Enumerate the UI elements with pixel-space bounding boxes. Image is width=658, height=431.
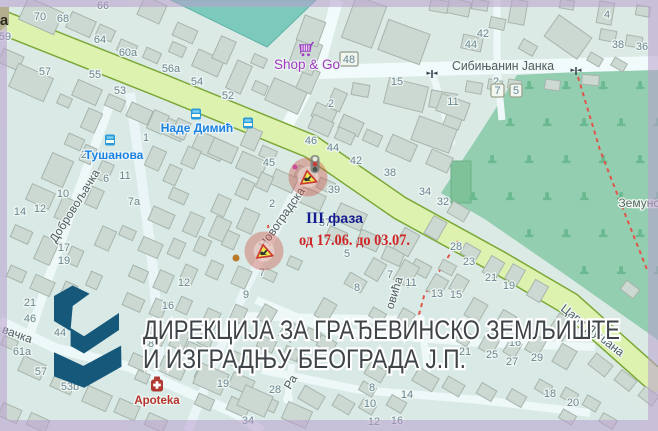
svg-text:55: 55 — [89, 69, 101, 81]
svg-text:Тушанова: Тушанова — [85, 148, 144, 162]
svg-text:14: 14 — [401, 389, 413, 401]
svg-text:38: 38 — [384, 167, 396, 179]
svg-text:5: 5 — [513, 85, 519, 97]
svg-text:Apoteka: Apoteka — [134, 395, 180, 407]
svg-text:10: 10 — [364, 398, 376, 410]
svg-text:19: 19 — [503, 280, 515, 292]
svg-text:53: 53 — [114, 85, 126, 97]
svg-text:14: 14 — [14, 206, 26, 218]
svg-text:11: 11 — [405, 277, 416, 289]
svg-text:68: 68 — [57, 13, 69, 25]
svg-text:12: 12 — [178, 277, 190, 289]
svg-text:19: 19 — [217, 378, 229, 390]
svg-text:64: 64 — [94, 34, 106, 46]
svg-text:ДИРЕКЦИЈА ЗА ГРАЂЕВИНСКО ЗЕМЉИ: ДИРЕКЦИЈА ЗА ГРАЂЕВИНСКО ЗЕМЉИШТЕ — [143, 315, 620, 345]
svg-text:9: 9 — [243, 289, 249, 301]
svg-text:46: 46 — [24, 313, 36, 325]
svg-text:15: 15 — [450, 289, 462, 301]
svg-text:IIIфаза: IIIфаза — [306, 210, 363, 227]
svg-text:56a: 56a — [162, 63, 181, 75]
svg-text:7а: 7а — [128, 196, 141, 208]
svg-text:11: 11 — [447, 96, 458, 108]
svg-text:21: 21 — [485, 272, 497, 284]
svg-text:11: 11 — [119, 170, 130, 182]
svg-text:42: 42 — [350, 155, 362, 167]
svg-text:25: 25 — [486, 349, 498, 361]
svg-text:Наде Димић: Наде Димић — [161, 121, 233, 135]
svg-text:54: 54 — [191, 76, 203, 88]
svg-text:Shop & Go: Shop & Go — [274, 57, 340, 72]
svg-text:52: 52 — [222, 90, 234, 102]
svg-text:8: 8 — [354, 282, 360, 294]
svg-text:12: 12 — [34, 203, 46, 215]
svg-text:13: 13 — [431, 288, 443, 300]
svg-text:28: 28 — [450, 241, 462, 253]
svg-text:39: 39 — [328, 184, 340, 196]
svg-text:2: 2 — [269, 198, 275, 210]
svg-text:од 17.06. до 03.07.: од 17.06. до 03.07. — [299, 232, 410, 249]
svg-text:32: 32 — [437, 196, 449, 208]
svg-text:а: а — [0, 12, 9, 29]
svg-text:23: 23 — [463, 256, 475, 268]
svg-text:17: 17 — [58, 242, 70, 254]
svg-text:6: 6 — [103, 173, 109, 185]
svg-text:29: 29 — [531, 352, 543, 364]
svg-text:45: 45 — [263, 157, 275, 169]
svg-text:5: 5 — [344, 248, 350, 260]
svg-text:48: 48 — [343, 54, 355, 66]
svg-text:36: 36 — [636, 41, 648, 53]
svg-text:46: 46 — [305, 135, 317, 147]
svg-text:28: 28 — [269, 384, 281, 396]
svg-text:2: 2 — [328, 98, 334, 110]
svg-text:8: 8 — [369, 382, 375, 394]
svg-text:21: 21 — [24, 297, 36, 309]
svg-text:7: 7 — [494, 85, 500, 97]
svg-text:61a: 61a — [13, 346, 32, 358]
svg-text:16: 16 — [162, 300, 174, 312]
svg-text:Сибињанин Јанка: Сибињанин Јанка — [452, 59, 554, 73]
svg-text:4: 4 — [604, 9, 610, 21]
svg-text:34: 34 — [419, 186, 431, 198]
svg-text:44: 44 — [327, 142, 339, 154]
svg-text:1: 1 — [143, 132, 149, 144]
svg-text:18: 18 — [544, 388, 556, 400]
svg-text:70: 70 — [34, 11, 46, 23]
svg-text:44: 44 — [54, 327, 66, 339]
svg-text:20: 20 — [567, 397, 579, 409]
svg-text:10: 10 — [57, 188, 69, 200]
svg-text:57: 57 — [35, 366, 47, 378]
svg-text:57: 57 — [39, 66, 51, 78]
svg-text:19: 19 — [58, 255, 70, 267]
svg-text:42: 42 — [477, 28, 489, 40]
svg-text:И ИЗГРАДЊУ БЕОГРАДА Ј.П.: И ИЗГРАДЊУ БЕОГРАДА Ј.П. — [143, 344, 466, 374]
svg-text:27: 27 — [506, 356, 518, 368]
svg-text:44: 44 — [465, 39, 477, 51]
svg-text:38: 38 — [612, 39, 624, 51]
svg-text:15: 15 — [391, 76, 403, 88]
svg-text:60a: 60a — [119, 47, 138, 59]
